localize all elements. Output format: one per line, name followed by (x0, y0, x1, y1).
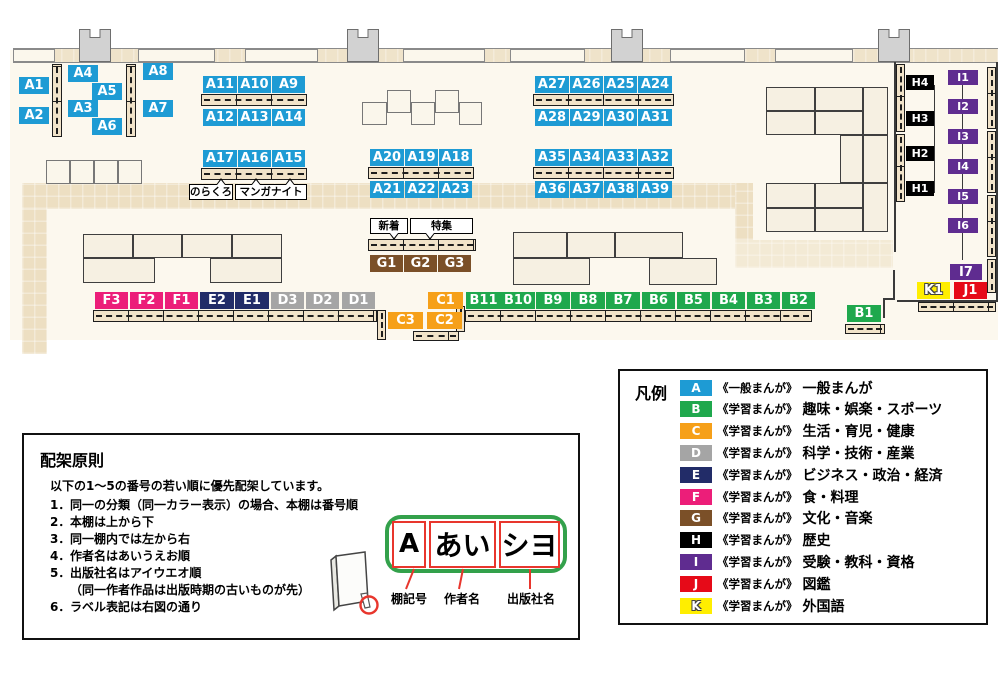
shelf-square (435, 90, 459, 113)
shelf-block (863, 87, 888, 135)
map-tag: 新着 (370, 218, 408, 234)
legend-tag: 《学習まんが》 (717, 423, 798, 439)
shelf-label-I7: I7 (950, 264, 982, 280)
legend-label: 文化・音楽 (803, 508, 873, 528)
shelf-block (815, 208, 863, 232)
floor-map-page: A1A2A4A3A5A6A8A7A11A10A9A12A13A14A17A16A… (0, 0, 1000, 700)
shelf-block (815, 87, 863, 111)
shelf-label-F1: F1 (165, 292, 198, 309)
window (13, 49, 55, 62)
shelf-label-A3: A3 (68, 100, 98, 117)
principles-item-number: 5． (50, 565, 70, 582)
label-diagram-graphics (320, 543, 580, 627)
shelf-strip (465, 310, 812, 322)
tag-pointer (252, 180, 260, 185)
shelf-strip (413, 331, 459, 341)
legend-row: J《学習まんが》図鑑 (680, 575, 831, 592)
legend-label: 生活・育児・健康 (803, 421, 915, 441)
legend-chip: D (680, 445, 712, 461)
shelf-block (83, 234, 133, 258)
shelf-label-A6: A6 (92, 118, 122, 135)
shelf-label-K1: K1 (917, 282, 950, 299)
shelf-label-A5: A5 (92, 83, 122, 100)
shelf-label-I1: I1 (948, 70, 978, 85)
shelf-square (411, 102, 435, 125)
shelf-square (387, 90, 411, 113)
shelf-label-H3: H3 (906, 111, 934, 126)
principles-item-text: ラベル表記は右図の通り (70, 599, 202, 616)
shelf-strip (52, 64, 62, 137)
shelf-block (766, 87, 815, 111)
legend-row: G《学習まんが》文化・音楽 (680, 510, 873, 527)
shelf-label-G2: G2 (404, 255, 437, 272)
shelf-block (863, 135, 888, 183)
shelf-block (83, 258, 155, 283)
shelf-strip (368, 167, 474, 179)
shelf-strip (533, 167, 674, 179)
shelf-label-A7: A7 (143, 100, 173, 117)
principles-item-text: 同一棚内では左から右 (70, 531, 190, 548)
shelf-label-B10: B10 (501, 292, 535, 309)
shelf-square (70, 160, 94, 184)
shelf-block (513, 232, 567, 258)
window (245, 49, 318, 62)
shelf-label-A23: A23 (439, 181, 472, 198)
shelf-strip (987, 195, 996, 257)
shelf-label-A28: A28 (535, 109, 569, 126)
shelf-strip (918, 302, 996, 312)
shelf-label-A33: A33 (604, 149, 637, 166)
legend-chip: B (680, 401, 712, 417)
shelf-label-H1: H1 (906, 181, 934, 196)
shelf-label-B7: B7 (606, 292, 640, 309)
window (403, 49, 485, 62)
shelf-label-I2: I2 (948, 99, 978, 114)
shelf-label-A13: A13 (238, 109, 271, 126)
principles-item-text: 同一の分類（同一カラー表示）の場合、本棚は番号順 (70, 497, 358, 514)
legend-tag: 《学習まんが》 (717, 598, 798, 614)
shelf-label-A8: A8 (143, 63, 173, 80)
legend-label: 食・料理 (803, 487, 859, 507)
pillar (79, 29, 111, 62)
wall-line (897, 300, 997, 302)
shelf-label-G1: G1 (370, 255, 403, 272)
shelf-strip (896, 64, 905, 132)
shelf-label-A34: A34 (570, 149, 603, 166)
principles-item-number: 2． (50, 514, 70, 531)
legend-label: 歴史 (803, 530, 831, 550)
wall-line (934, 85, 935, 193)
wall-line (893, 270, 895, 300)
legend-row: A《一般まんが》一般まんが (680, 379, 873, 396)
shelf-label-G3: G3 (438, 255, 471, 272)
legend-chip: K (680, 598, 712, 614)
walkway-band (735, 240, 893, 268)
shelf-square (46, 160, 70, 184)
shelf-label-H2: H2 (906, 146, 934, 161)
principles-item-text: 本棚は上から下 (70, 514, 154, 531)
window (138, 49, 215, 62)
principles-item-text: （同一作者作品は出版時期の古いものが先） (70, 582, 310, 599)
legend-label: 一般まんが (803, 378, 873, 398)
window (775, 49, 853, 62)
legend-title: 凡例 (635, 380, 667, 404)
legend-row: I《学習まんが》受験・教科・資格 (680, 553, 915, 570)
shelf-label-A39: A39 (638, 181, 672, 198)
shelf-square (459, 102, 482, 125)
shelf-label-D3: D3 (271, 292, 304, 309)
shelf-block (615, 232, 683, 258)
legend-row: D《学習まんが》科学・技術・産業 (680, 444, 915, 461)
shelf-label-A17: A17 (203, 150, 237, 167)
legend-row: K《学習まんが》外国語 (680, 597, 845, 614)
shelf-square (118, 160, 142, 184)
legend-chip: F (680, 489, 712, 505)
shelf-label-A14: A14 (272, 109, 305, 126)
tag-pointer (390, 233, 398, 238)
shelf-label-A26: A26 (570, 76, 603, 93)
shelf-label-A29: A29 (570, 109, 603, 126)
legend-label: 趣味・娯楽・スポーツ (803, 399, 943, 419)
shelf-label-F2: F2 (130, 292, 163, 309)
legend-label: 受験・教科・資格 (803, 552, 915, 572)
shelf-strip (533, 94, 674, 106)
principles-title: 配架原則 (40, 447, 104, 471)
shelf-label-A35: A35 (535, 149, 569, 166)
shelf-label-C3: C3 (388, 312, 423, 329)
legend-tag: 《学習まんが》 (717, 510, 798, 526)
window (510, 49, 585, 62)
shelf-label-B3: B3 (747, 292, 780, 309)
shelf-label-C2: C2 (427, 312, 462, 329)
shelf-label-A37: A37 (570, 181, 603, 198)
principles-item-number: 3． (50, 531, 70, 548)
shelf-label-I6: I6 (948, 218, 978, 233)
shelf-label-B6: B6 (642, 292, 675, 309)
shelf-strip (93, 310, 377, 322)
legend-row: B《学習まんが》趣味・娯楽・スポーツ (680, 401, 942, 418)
shelf-label-A12: A12 (203, 109, 237, 126)
map-tag: のらくろ (189, 184, 233, 200)
shelf-square (362, 102, 387, 125)
legend-label: 図鑑 (803, 574, 831, 594)
shelf-label-J1: J1 (954, 282, 987, 299)
shelf-label-A24: A24 (638, 76, 672, 93)
shelf-label-F3: F3 (95, 292, 128, 309)
shelf-label-A16: A16 (238, 150, 271, 167)
shelf-label-H4: H4 (906, 75, 934, 90)
wall-line (894, 62, 896, 252)
wall-line (883, 300, 885, 318)
window (670, 49, 745, 62)
diagram-caption: 出版社名 (507, 590, 555, 607)
tag-pointer (217, 180, 225, 185)
legend-row: C《学習まんが》生活・育児・健康 (680, 423, 915, 440)
shelf-label-C1: C1 (428, 292, 463, 309)
legend-row: H《学習まんが》歴史 (680, 532, 831, 549)
walkway-band (22, 209, 47, 354)
map-tag: マンガナイト (235, 184, 307, 200)
pillar (878, 29, 910, 62)
shelf-block (863, 183, 888, 232)
principles-item-text: 作者名はあいうえお順 (70, 548, 190, 565)
legend-tag: 《学習まんが》 (717, 576, 798, 592)
legend-tag: 《学習まんが》 (717, 554, 798, 570)
shelf-label-B8: B8 (571, 292, 605, 309)
shelf-label-D2: D2 (306, 292, 339, 309)
principles-item-number: 6． (50, 599, 70, 616)
principles-item: 1．同一の分類（同一カラー表示）の場合、本棚は番号順 (50, 497, 380, 514)
shelf-label-A15: A15 (272, 150, 305, 167)
shelf-label-A27: A27 (535, 76, 569, 93)
legend-chip: I (680, 554, 712, 570)
shelf-label-A20: A20 (370, 149, 404, 166)
shelf-block (210, 258, 282, 283)
shelf-strip (987, 131, 996, 193)
shelf-block (840, 135, 863, 183)
shelf-label-A32: A32 (638, 149, 672, 166)
pointer-line (459, 569, 463, 589)
shelf-block (766, 111, 815, 135)
shelf-block (766, 208, 815, 232)
legend-label: 科学・技術・産業 (803, 443, 915, 463)
shelf-label-B4: B4 (712, 292, 745, 309)
shelf-strip (987, 67, 996, 129)
shelf-label-A4: A4 (68, 65, 98, 82)
map-tag: 特集 (410, 218, 473, 234)
shelf-block (513, 258, 590, 285)
shelf-label-A19: A19 (405, 149, 438, 166)
shelf-block (649, 258, 717, 285)
legend-chip: J (680, 576, 712, 592)
shelf-label-A18: A18 (439, 149, 472, 166)
shelf-label-A31: A31 (638, 109, 672, 126)
legend-tag: 《学習まんが》 (717, 445, 798, 461)
shelf-label-A10: A10 (238, 76, 271, 93)
pillar (347, 29, 379, 62)
shelf-strip (896, 134, 905, 202)
legend-row: E《学習まんが》ビジネス・政治・経済 (680, 466, 943, 483)
shelf-block (182, 234, 232, 258)
shelf-label-A36: A36 (535, 181, 569, 198)
legend-chip: E (680, 467, 712, 483)
shelf-strip (368, 239, 476, 251)
shelf-strip (126, 64, 136, 137)
legend-tag: 《学習まんが》 (717, 467, 798, 483)
legend-label: ビジネス・政治・経済 (803, 465, 943, 485)
shelf-label-I4: I4 (948, 159, 978, 174)
shelf-label-A22: A22 (405, 181, 438, 198)
legend-chip: G (680, 510, 712, 526)
wall-line (996, 62, 998, 302)
shelf-label-B1: B1 (847, 305, 881, 322)
legend-box: 凡例 A《一般まんが》一般まんがB《学習まんが》趣味・娯楽・スポーツC《学習まん… (618, 369, 988, 625)
shelf-block (133, 234, 182, 258)
legend-label: 外国語 (803, 596, 845, 616)
tag-pointer (286, 180, 294, 185)
shelf-label-I5: I5 (948, 189, 978, 204)
shelf-label-A21: A21 (370, 181, 404, 198)
legend-row: F《学習まんが》食・料理 (680, 488, 859, 505)
shelf-label-B5: B5 (677, 292, 710, 309)
shelf-label-A9: A9 (272, 76, 305, 93)
walkway-band (735, 183, 753, 240)
shelf-label-A2: A2 (19, 107, 49, 124)
shelf-label-A25: A25 (604, 76, 637, 93)
shelf-label-A38: A38 (604, 181, 637, 198)
shelf-label-I3: I3 (948, 129, 978, 144)
principles-intro: 以下の1～5の番号の若い順に優先配架しています。 (50, 477, 329, 494)
principles-item-number: 1． (50, 497, 70, 514)
tag-pointer (426, 233, 434, 238)
shelf-block (815, 111, 863, 135)
shelf-square (94, 160, 118, 184)
shelf-block (567, 232, 615, 258)
shelf-block (232, 234, 282, 258)
legend-tag: 《学習まんが》 (717, 532, 798, 548)
shelf-strip (377, 310, 386, 340)
principles-item-text: 出版社名はアイウエオ順 (70, 565, 201, 582)
diagram-caption: 作者名 (444, 590, 480, 607)
shelf-label-A30: A30 (604, 109, 637, 126)
shelf-strip (201, 94, 307, 106)
principles-item-number: 4． (50, 548, 70, 565)
shelf-label-B11: B11 (466, 292, 501, 309)
principles-item: 2．本棚は上から下 (50, 514, 380, 531)
shelf-label-A11: A11 (203, 76, 237, 93)
pointer-line (406, 569, 414, 589)
legend-chip: A (680, 380, 712, 396)
diagram-caption: 棚記号 (391, 590, 427, 607)
shelf-strip (845, 324, 885, 334)
legend-chip: H (680, 532, 712, 548)
legend-tag: 《学習まんが》 (717, 401, 798, 417)
shelf-label-D1: D1 (342, 292, 375, 309)
legend-chip: C (680, 423, 712, 439)
shelf-block (766, 183, 815, 208)
shelf-label-E1: E1 (235, 292, 269, 309)
shelf-label-B9: B9 (536, 292, 570, 309)
legend-tag: 《一般まんが》 (717, 380, 798, 396)
shelf-label-B2: B2 (782, 292, 815, 309)
legend-tag: 《学習まんが》 (717, 489, 798, 505)
shelf-strip (987, 259, 996, 293)
shelf-label-A1: A1 (19, 77, 49, 94)
pillar (611, 29, 643, 62)
shelf-block (815, 183, 863, 208)
shelf-label-E2: E2 (200, 292, 234, 309)
